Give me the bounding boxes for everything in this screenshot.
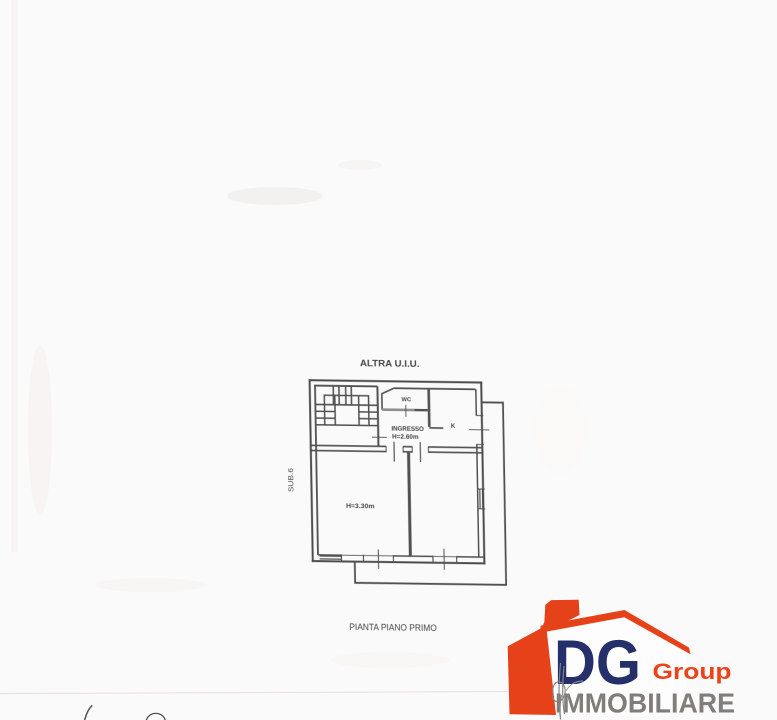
svg-text:PIANTA PIANO PRIMO: PIANTA PIANO PRIMO [349, 622, 437, 633]
svg-text:Group: Group [653, 659, 732, 684]
svg-text:K: K [451, 424, 456, 430]
svg-text:INGRESSO: INGRESSO [391, 425, 424, 432]
svg-text:WC: WC [402, 397, 412, 403]
svg-text:H=3.30m: H=3.30m [346, 503, 375, 510]
svg-text:ALTRA U.I.U.: ALTRA U.I.U. [360, 358, 420, 369]
svg-text:IMMOBILIARE: IMMOBILIARE [555, 687, 735, 718]
svg-text:H=2.60m: H=2.60m [392, 434, 419, 440]
svg-text:SUB.6: SUB.6 [286, 468, 295, 492]
